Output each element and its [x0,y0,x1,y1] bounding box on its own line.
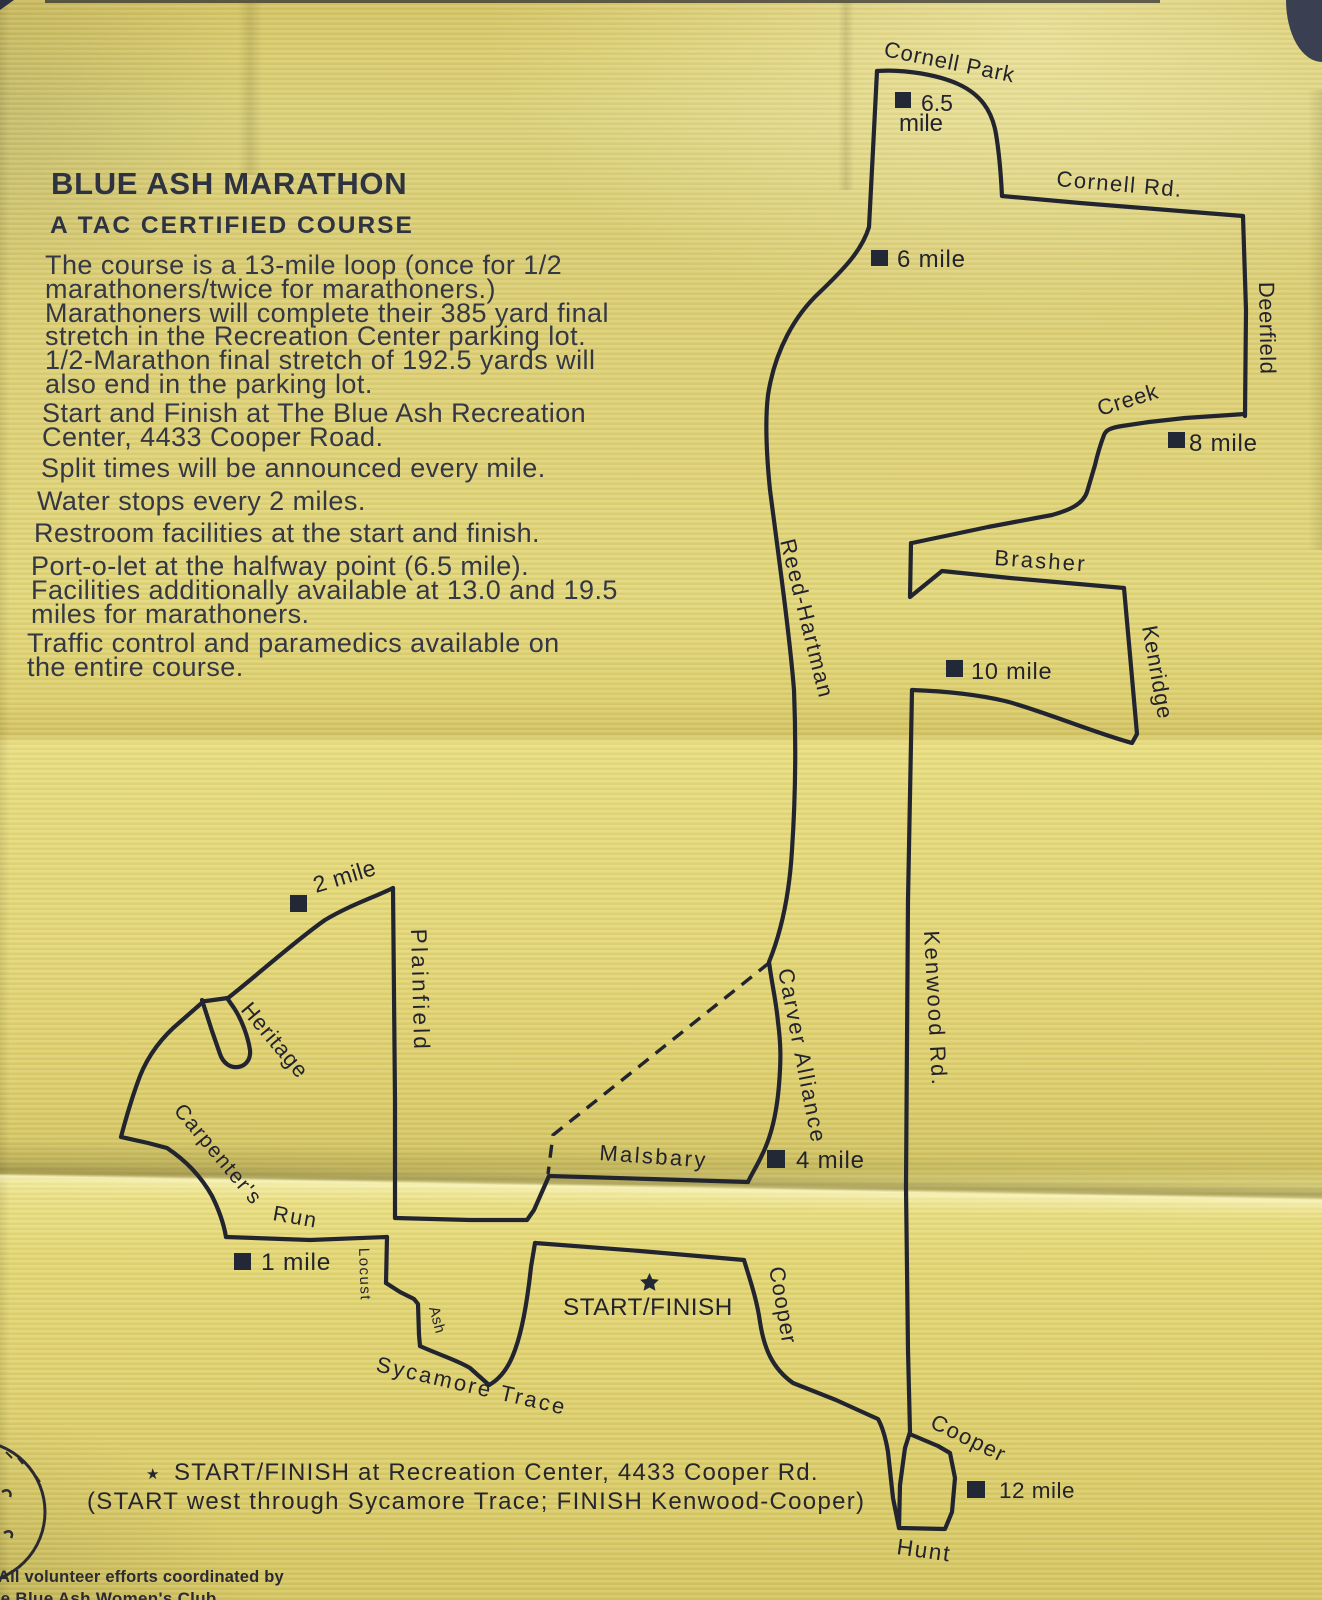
svg-text:12 mile: 12 mile [999,1478,1075,1503]
svg-text:Creek: Creek [1094,378,1161,420]
svg-text:Ash: Ash [425,1305,449,1336]
svg-text:Plainfield: Plainfield [406,928,434,1052]
svg-text:Malsbary: Malsbary [599,1140,709,1173]
svg-text:4 mile: 4 mile [796,1147,865,1174]
svg-text:mile: mile [899,110,943,137]
svg-text:2 mile: 2 mile [310,854,379,898]
svg-text:Sycamore Trace: Sycamore Trace [374,1352,570,1420]
svg-text:1 mile: 1 mile [261,1249,331,1276]
svg-text:Deerfield: Deerfield [1254,282,1281,375]
svg-text:Run: Run [271,1201,320,1233]
svg-text:10 mile: 10 mile [971,658,1052,684]
svg-text:START/FINISH: START/FINISH [563,1294,733,1321]
svg-text:6 mile: 6 mile [897,246,966,273]
svg-text:Cooper: Cooper [927,1409,1011,1467]
svg-text:Kenridge: Kenridge [1137,624,1178,721]
svg-text:Kenwood Rd.: Kenwood Rd. [919,930,952,1087]
svg-text:Locust: Locust [355,1248,374,1302]
svg-text:Cooper: Cooper [764,1265,802,1346]
svg-text:Hunt: Hunt [895,1534,953,1566]
svg-text:Carpenter's: Carpenter's [169,1099,267,1209]
svg-text:8 mile: 8 mile [1189,430,1258,457]
svg-text:Cornell Rd.: Cornell Rd. [1056,166,1184,202]
svg-text:Brasher: Brasher [994,545,1088,576]
